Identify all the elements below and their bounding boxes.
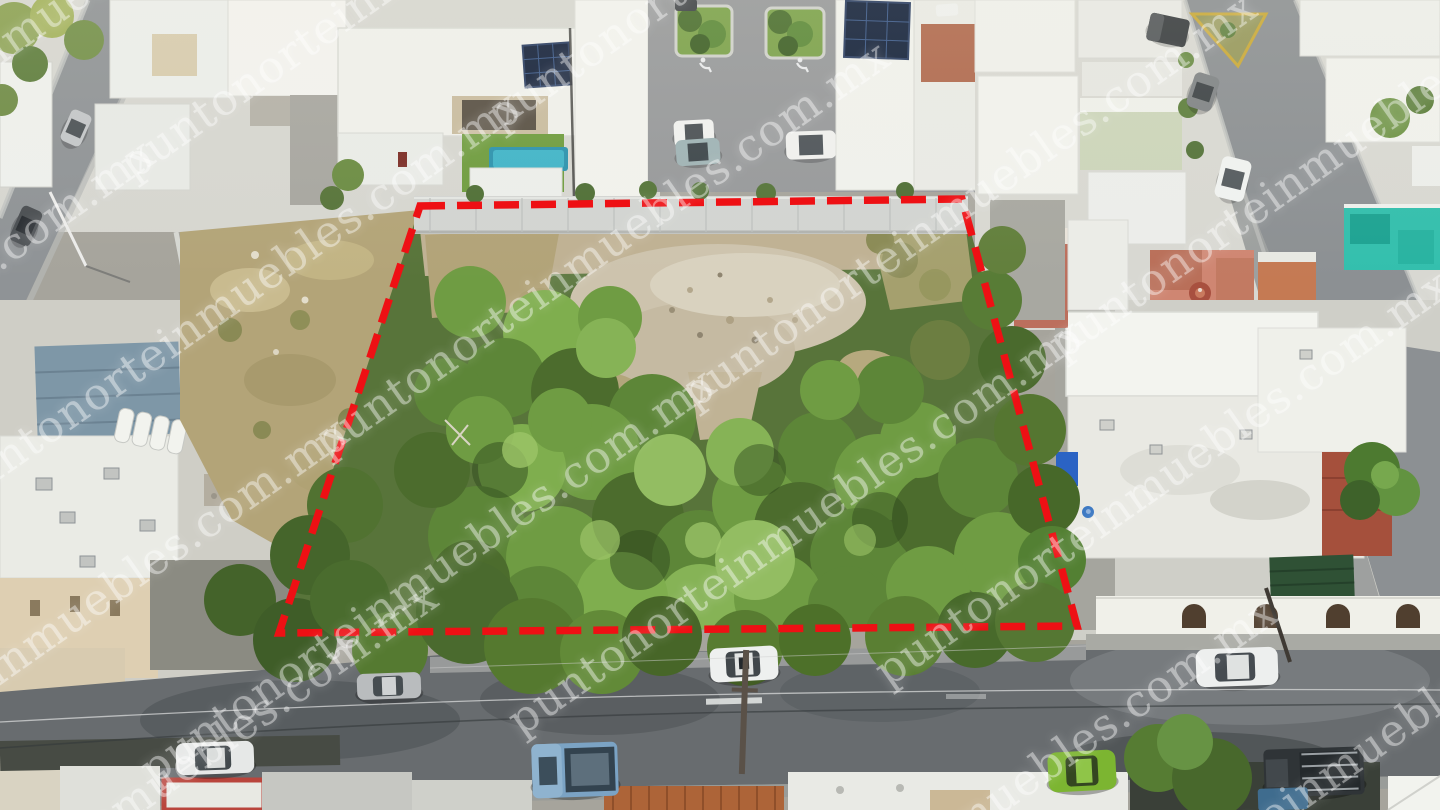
aerial-scene (0, 0, 1440, 810)
aerial-photo: puntonorteinmuebles.com.mx puntonorteinm… (0, 0, 1440, 810)
atmospheric-haze (0, 0, 1440, 810)
